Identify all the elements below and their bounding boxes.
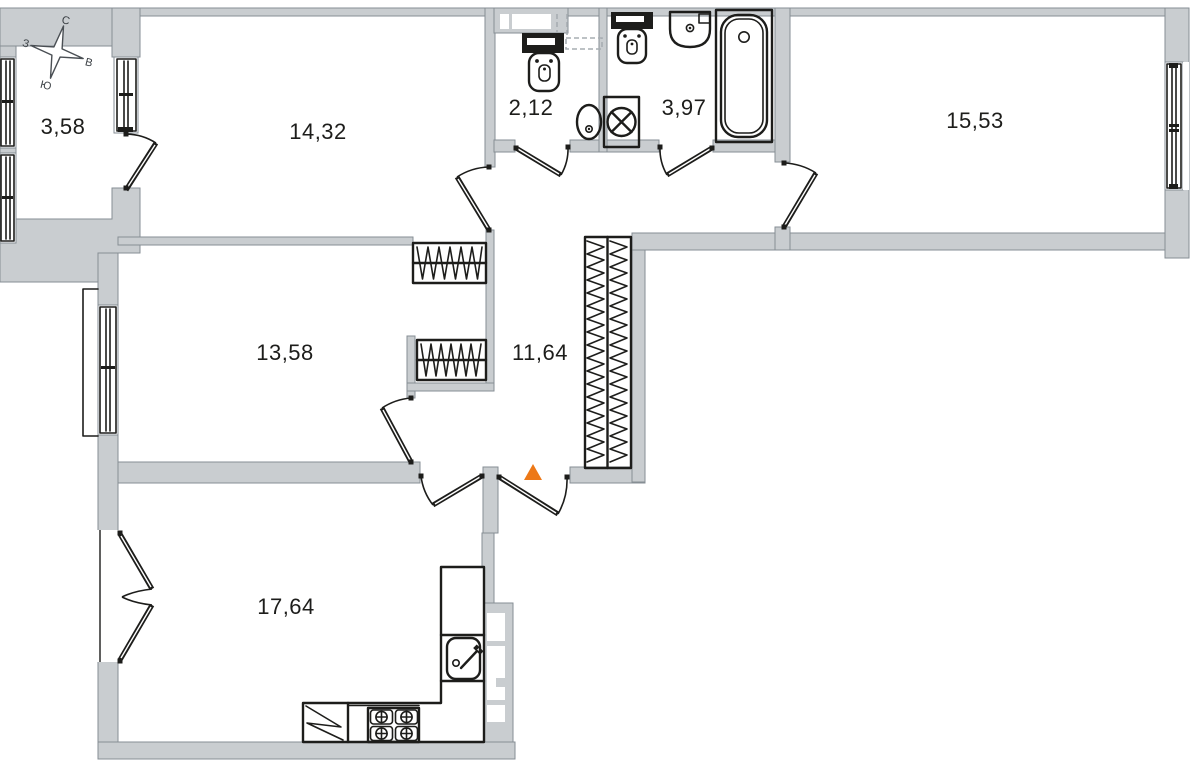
wall-hall-right xyxy=(632,233,645,482)
wall-niche-bottom xyxy=(407,383,494,391)
door-room15 xyxy=(782,161,817,230)
wall-room13-bottom xyxy=(118,462,420,483)
toilet-wc-icon xyxy=(522,33,564,91)
wall-entry-pier xyxy=(483,467,498,533)
door-room13 xyxy=(382,396,414,465)
wall-niche-hall xyxy=(486,230,494,391)
window-room13-outer-sill xyxy=(83,289,98,436)
floor-plan-svg: С Ю З В 3,58 14,32 2,12 3,97 15,53 13,58… xyxy=(0,0,1191,772)
door-kitchen-balcony-double xyxy=(118,531,153,664)
wall-balcony-bottom xyxy=(0,188,140,282)
label-bathroom-area: 3,97 xyxy=(662,95,707,120)
kitchen-shaft-b xyxy=(487,646,505,700)
washbasin-icon xyxy=(670,12,710,47)
label-kitchen-area: 17,64 xyxy=(257,594,315,619)
kitchen xyxy=(303,567,484,742)
corner-sink-icon xyxy=(577,105,601,139)
wall-room13-top xyxy=(118,237,413,245)
compass-east-label: В xyxy=(84,56,94,69)
wall-room15-door-pier xyxy=(775,227,790,250)
entrance-marker-triangle xyxy=(524,464,542,480)
label-balcony-area: 3,58 xyxy=(41,114,86,139)
label-room13-area: 13,58 xyxy=(256,340,314,365)
floor-plan: С Ю З В 3,58 14,32 2,12 3,97 15,53 13,58… xyxy=(0,0,1191,772)
kitchen-shaft-c xyxy=(487,705,505,722)
toilet-bath-icon xyxy=(611,12,653,63)
wall-bath-room15 xyxy=(775,8,790,162)
vent-shaft-large xyxy=(512,14,551,29)
door-entrance xyxy=(497,475,570,515)
hall-closet-icon xyxy=(585,237,631,468)
door-kitchen xyxy=(419,474,485,506)
label-wc-area: 2,12 xyxy=(509,95,554,120)
window-room13 xyxy=(83,289,118,436)
compass-south-label: Ю xyxy=(39,79,53,93)
door-room14 xyxy=(457,165,492,233)
bathtub-icon xyxy=(716,10,772,142)
wardrobe-2-icon xyxy=(417,340,486,380)
vent-shaft-small xyxy=(500,14,509,29)
wardrobe-1-icon xyxy=(413,243,486,283)
window-balcony-room14 xyxy=(114,57,138,133)
window-balcony-left-lower xyxy=(0,153,16,243)
wall-balcony-right-upper xyxy=(112,8,140,57)
label-room15-area: 15,53 xyxy=(946,108,1004,133)
door-wc xyxy=(514,145,571,176)
kitchen-shaft-pipe xyxy=(496,678,510,687)
wall-niche-left-stub xyxy=(407,336,415,383)
window-room15 xyxy=(1165,62,1189,190)
area-labels: 3,58 14,32 2,12 3,97 15,53 13,58 11,64 1… xyxy=(41,95,1004,619)
label-hallway-area: 11,64 xyxy=(512,340,568,365)
kitchen-counter xyxy=(303,567,484,742)
wall-wc-bottom-right xyxy=(570,140,599,152)
wall-room15-bottom xyxy=(632,233,1183,250)
door-balcony xyxy=(124,132,157,191)
window-balcony-left-upper xyxy=(0,57,16,148)
kitchen-shaft-a xyxy=(487,613,505,641)
label-room14-area: 14,32 xyxy=(289,119,347,144)
door-bathroom xyxy=(658,145,715,176)
walls xyxy=(0,8,1189,759)
wall-bottom-exterior xyxy=(98,742,515,759)
wall-wc-bottom-left xyxy=(494,140,515,152)
